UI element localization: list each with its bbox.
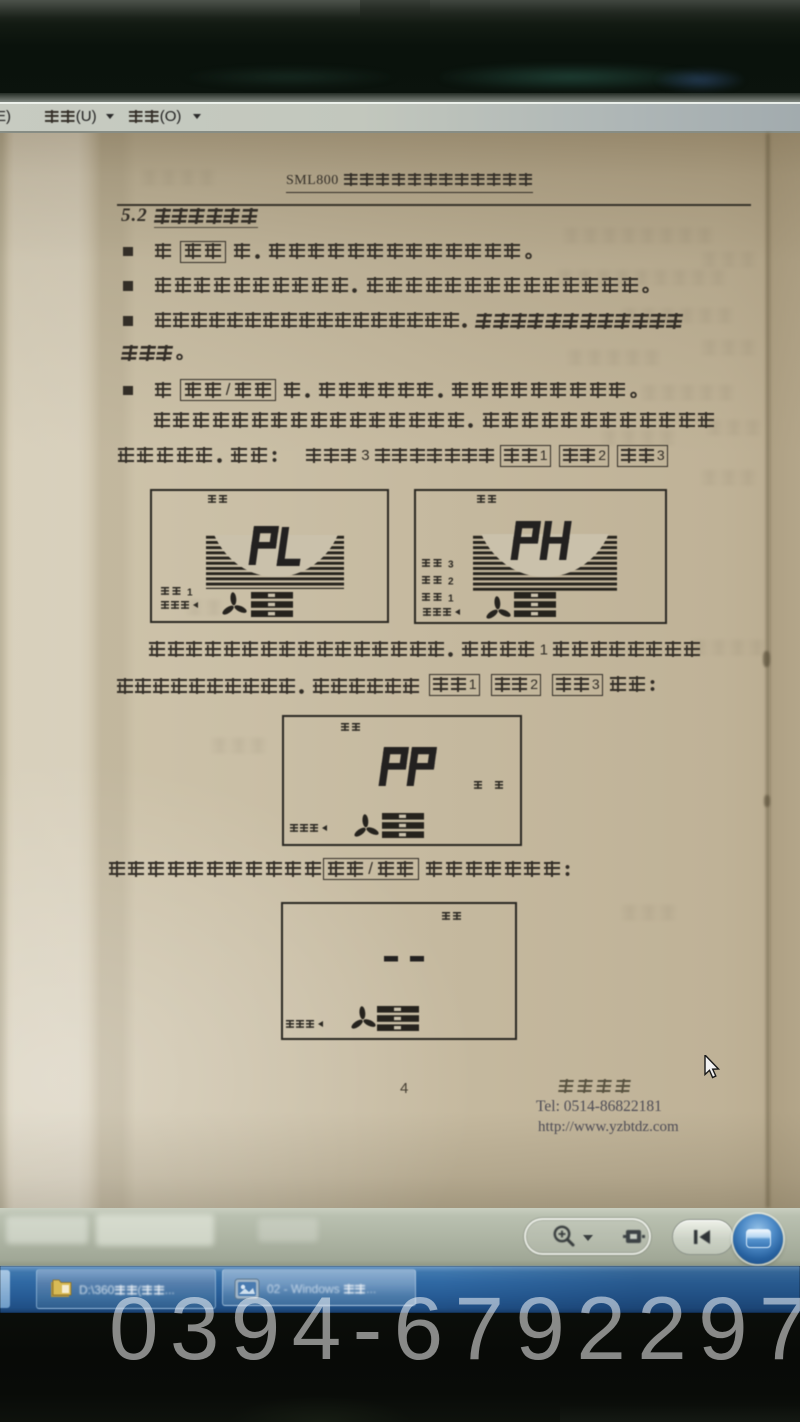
svg-text:3: 3 [448, 560, 454, 571]
svg-text:1: 1 [187, 588, 193, 599]
svg-text:1: 1 [448, 594, 454, 605]
svg-text:2: 2 [448, 577, 454, 588]
